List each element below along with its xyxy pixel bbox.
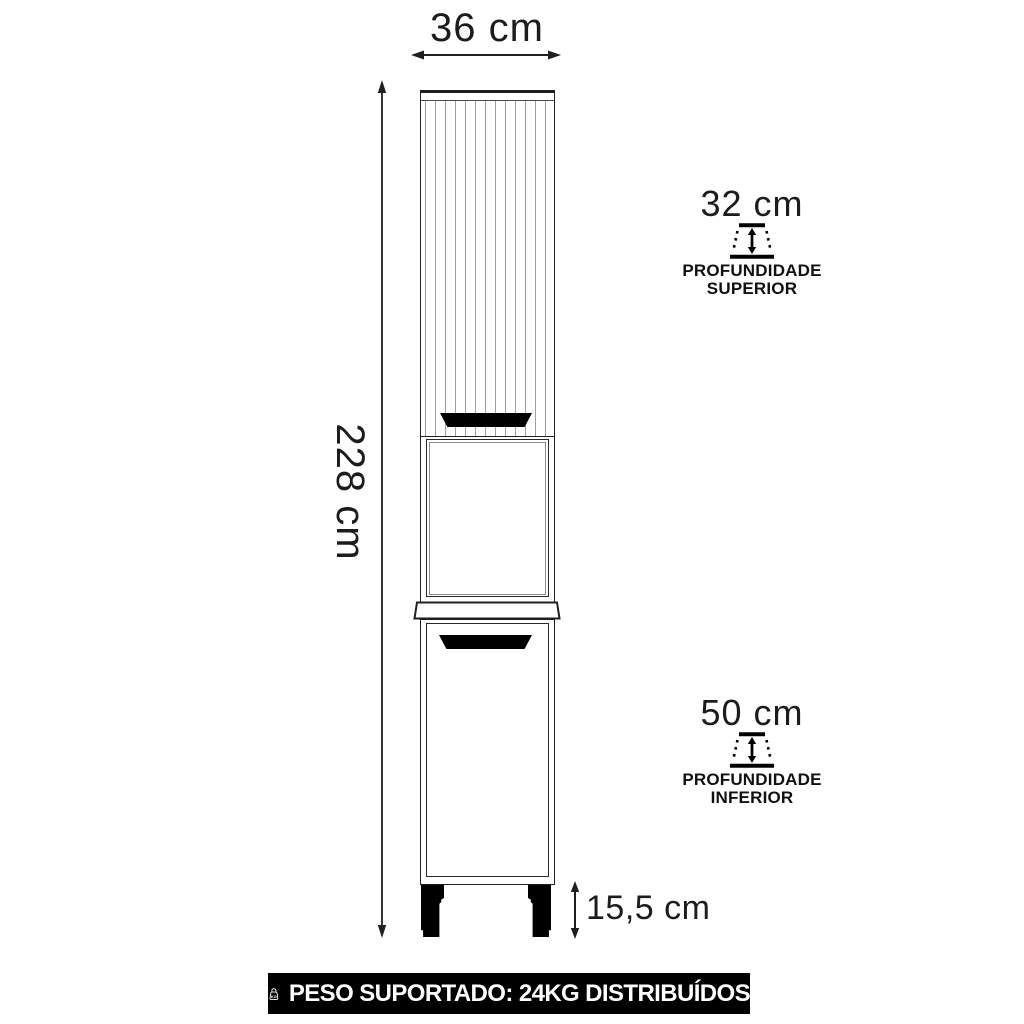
- furniture-dimension-diagram: 36 cm 228 cm 15,5 cm: [0, 0, 1024, 1024]
- cabinet-top-panel: [421, 93, 554, 101]
- middle-divider-board: [413, 601, 561, 620]
- shelf-opening: [429, 442, 546, 595]
- upper-depth-annotation: 32 cm PROFUNDIDADE SUPERIOR: [642, 186, 862, 297]
- depth-arrow-icon: [729, 732, 775, 768]
- upper-depth-label-line1: PROFUNDIDADE: [642, 262, 862, 280]
- right-foot: [528, 885, 551, 937]
- lower-depth-value: 50 cm: [642, 695, 862, 731]
- feet-height-label: 15,5 cm: [586, 889, 710, 928]
- shelf-opening-frame: [426, 439, 549, 597]
- lower-door-panel: [426, 623, 549, 877]
- open-shelf-compartment: [420, 437, 555, 602]
- height-dimension-label: 228 cm: [328, 402, 372, 582]
- left-foot: [421, 885, 444, 937]
- lower-cabinet: [420, 619, 555, 885]
- lower-depth-label-line2: INFERIOR: [642, 789, 862, 807]
- feet-height-arrow: [568, 881, 582, 939]
- banner-text: PESO SUPORTADO: 24KG DISTRIBUÍDOS: [289, 980, 750, 1008]
- upper-depth-label-line2: SUPERIOR: [642, 280, 862, 298]
- depth-arrow-icon: [729, 223, 775, 259]
- width-dimension-label: 36 cm: [412, 6, 562, 51]
- fluted-texture: [425, 101, 551, 436]
- upper-door-handle: [440, 413, 532, 427]
- kg-weight-icon: KG: [268, 977, 280, 1011]
- lower-depth-annotation: 50 cm PROFUNDIDADE INFERIOR: [642, 695, 862, 806]
- upper-fluted-door: [420, 90, 555, 437]
- kg-icon-label: KG: [271, 994, 277, 999]
- lower-door-handle: [439, 635, 532, 649]
- width-dimension-arrow: [410, 47, 562, 63]
- weight-capacity-banner: KG PESO SUPORTADO: 24KG DISTRIBUÍDOS: [268, 973, 750, 1014]
- upper-depth-value: 32 cm: [642, 186, 862, 222]
- lower-depth-label-line1: PROFUNDIDADE: [642, 771, 862, 789]
- height-dimension-arrow: [375, 80, 389, 938]
